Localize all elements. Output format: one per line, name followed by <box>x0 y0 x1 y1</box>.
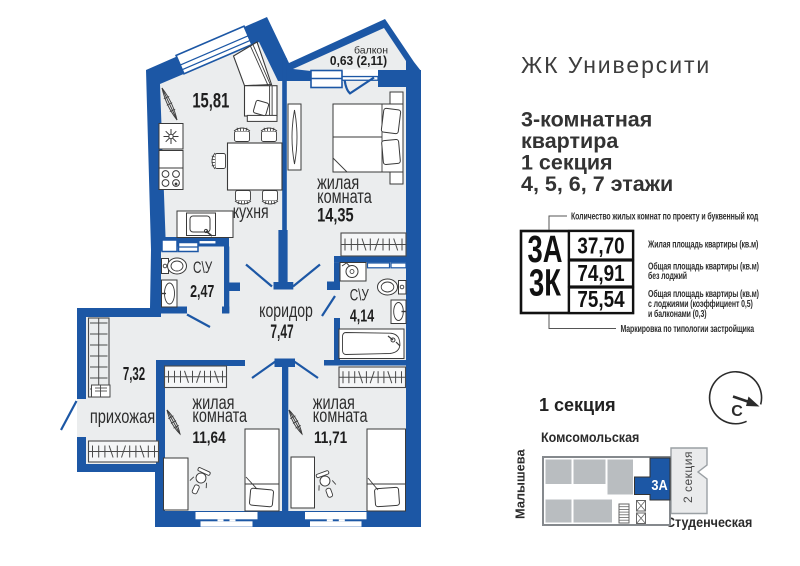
svg-text:квартира: квартира <box>521 129 619 153</box>
svg-text:11,71: 11,71 <box>314 429 348 448</box>
svg-text:7,47: 7,47 <box>270 321 293 343</box>
svg-text:кухня: кухня <box>233 201 269 223</box>
svg-text:комната: комната <box>313 405 368 426</box>
svg-text:0,63 (2,11): 0,63 (2,11) <box>330 54 387 68</box>
svg-text:14,35: 14,35 <box>317 205 354 226</box>
svg-text:Малышева: Малышева <box>513 449 528 519</box>
svg-text:Маркировка по типологии застро: Маркировка по типологии застройщика <box>621 323 755 335</box>
svg-text:2,47: 2,47 <box>190 282 214 302</box>
svg-text:4, 5, 6, 7 этажи: 4, 5, 6, 7 этажи <box>521 172 673 196</box>
svg-text:75,54: 75,54 <box>577 287 624 312</box>
svg-text:ЖК Университи: ЖК Университи <box>521 52 711 78</box>
svg-text:коридор: коридор <box>259 300 313 322</box>
svg-text:3А: 3А <box>651 476 667 493</box>
svg-text:без лоджий: без лоджий <box>648 270 687 282</box>
svg-text:Комсомольская: Комсомольская <box>541 430 639 446</box>
svg-text:Количество жилых комнат по про: Количество жилых комнат по проекту и бук… <box>571 210 759 222</box>
svg-text:Студенческая: Студенческая <box>666 515 752 531</box>
svg-text:комната: комната <box>192 405 247 426</box>
svg-text:11,64: 11,64 <box>192 429 226 448</box>
svg-text:4,14: 4,14 <box>350 306 375 326</box>
svg-text:37,70: 37,70 <box>577 234 624 259</box>
svg-text:С: С <box>731 403 743 420</box>
svg-text:2 секция: 2 секция <box>681 451 695 503</box>
svg-text:С\У: С\У <box>350 287 370 305</box>
svg-text:3К: 3К <box>529 262 562 304</box>
svg-text:1 секция: 1 секция <box>521 151 613 175</box>
svg-text:и балконами (0,3): и балконами (0,3) <box>648 308 707 320</box>
svg-text:15,81: 15,81 <box>192 88 229 112</box>
svg-text:7,32: 7,32 <box>123 364 145 384</box>
svg-text:Жилая площадь квартиры (кв.м): Жилая площадь квартиры (кв.м) <box>647 238 758 250</box>
svg-text:3-комнатная: 3-комнатная <box>521 108 652 132</box>
svg-text:С\У: С\У <box>193 259 213 277</box>
svg-text:74,91: 74,91 <box>577 261 624 286</box>
svg-text:прихожая: прихожая <box>90 405 155 428</box>
svg-text:1 секция: 1 секция <box>539 395 616 415</box>
